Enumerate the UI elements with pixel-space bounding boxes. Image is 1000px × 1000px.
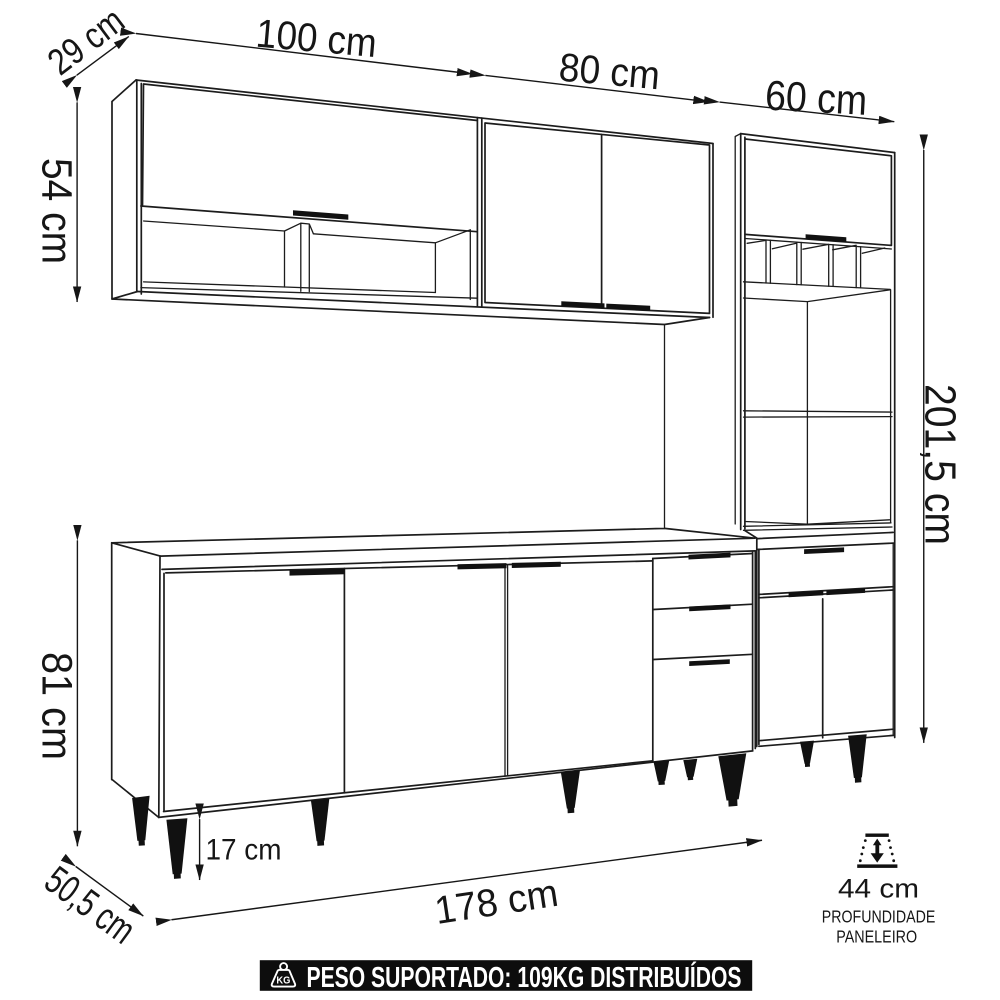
svg-text:60 cm: 60 cm xyxy=(764,72,868,124)
svg-text:201,5 cm: 201,5 cm xyxy=(916,384,965,545)
svg-text:178 cm: 178 cm xyxy=(432,872,561,933)
svg-text:80 cm: 80 cm xyxy=(557,46,661,99)
svg-text:PROFUNDIDADE: PROFUNDIDADE xyxy=(822,907,936,927)
svg-text:54 cm: 54 cm xyxy=(33,158,81,264)
svg-text:17 cm: 17 cm xyxy=(206,834,282,867)
svg-text:100 cm: 100 cm xyxy=(254,12,378,66)
svg-text:PESO SUPORTADO: 109KG DISTRIBU: PESO SUPORTADO: 109KG DISTRIBUÍDOS xyxy=(307,960,742,994)
svg-text:44 cm: 44 cm xyxy=(838,874,919,904)
svg-text:KG: KG xyxy=(276,976,290,987)
svg-text:29 cm: 29 cm xyxy=(40,0,132,83)
svg-text:50,5 cm: 50,5 cm xyxy=(37,859,143,953)
svg-text:81 cm: 81 cm xyxy=(33,652,81,760)
svg-text:PANELEIRO: PANELEIRO xyxy=(836,926,917,946)
